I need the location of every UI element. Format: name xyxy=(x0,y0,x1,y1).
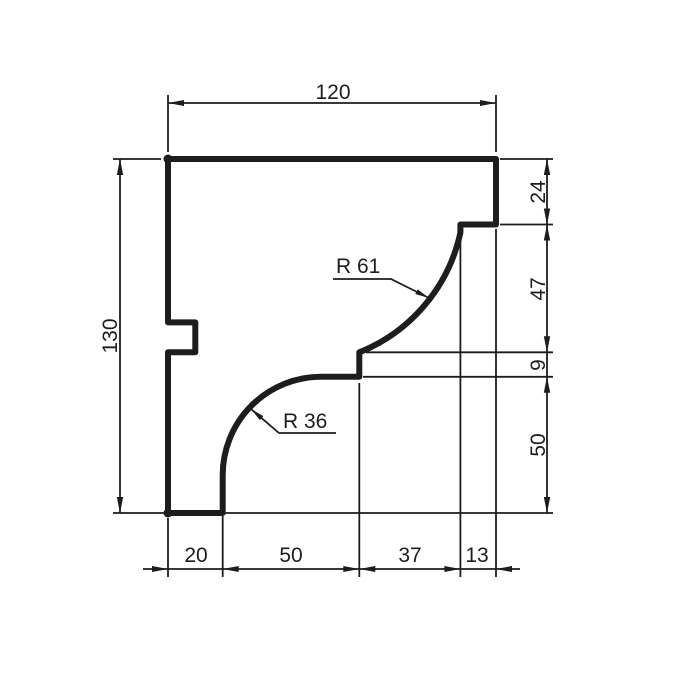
dim-label-left-height: 130 xyxy=(99,318,122,353)
dim-label-bottom-20: 20 xyxy=(184,544,207,567)
dim-label-right-9: 9 xyxy=(527,359,550,371)
dim-label-bottom-13: 13 xyxy=(465,544,488,567)
technical-drawing-canvas: 120 130 24 47 9 50 20 50 37 13 R 61 R 36 xyxy=(0,0,686,686)
dim-label-right-50: 50 xyxy=(527,433,550,456)
leader-arrowheads xyxy=(251,289,429,420)
radius-label-r36: R 36 xyxy=(283,410,327,433)
dim-label-right-24: 24 xyxy=(527,180,550,204)
dimension-lines xyxy=(120,103,547,569)
profile-outline xyxy=(168,159,496,513)
leader-lines xyxy=(251,279,429,433)
corner-node-dot-top-left xyxy=(164,155,173,164)
dim-label-right-47: 47 xyxy=(527,277,550,300)
extension-lines xyxy=(113,95,553,577)
dimension-arrowheads xyxy=(117,100,550,572)
dim-label-top-width: 120 xyxy=(315,81,350,104)
profile xyxy=(164,155,497,518)
dim-label-bottom-50: 50 xyxy=(279,544,302,567)
radius-label-r61: R 61 xyxy=(336,255,380,278)
dim-label-bottom-37: 37 xyxy=(398,544,421,567)
